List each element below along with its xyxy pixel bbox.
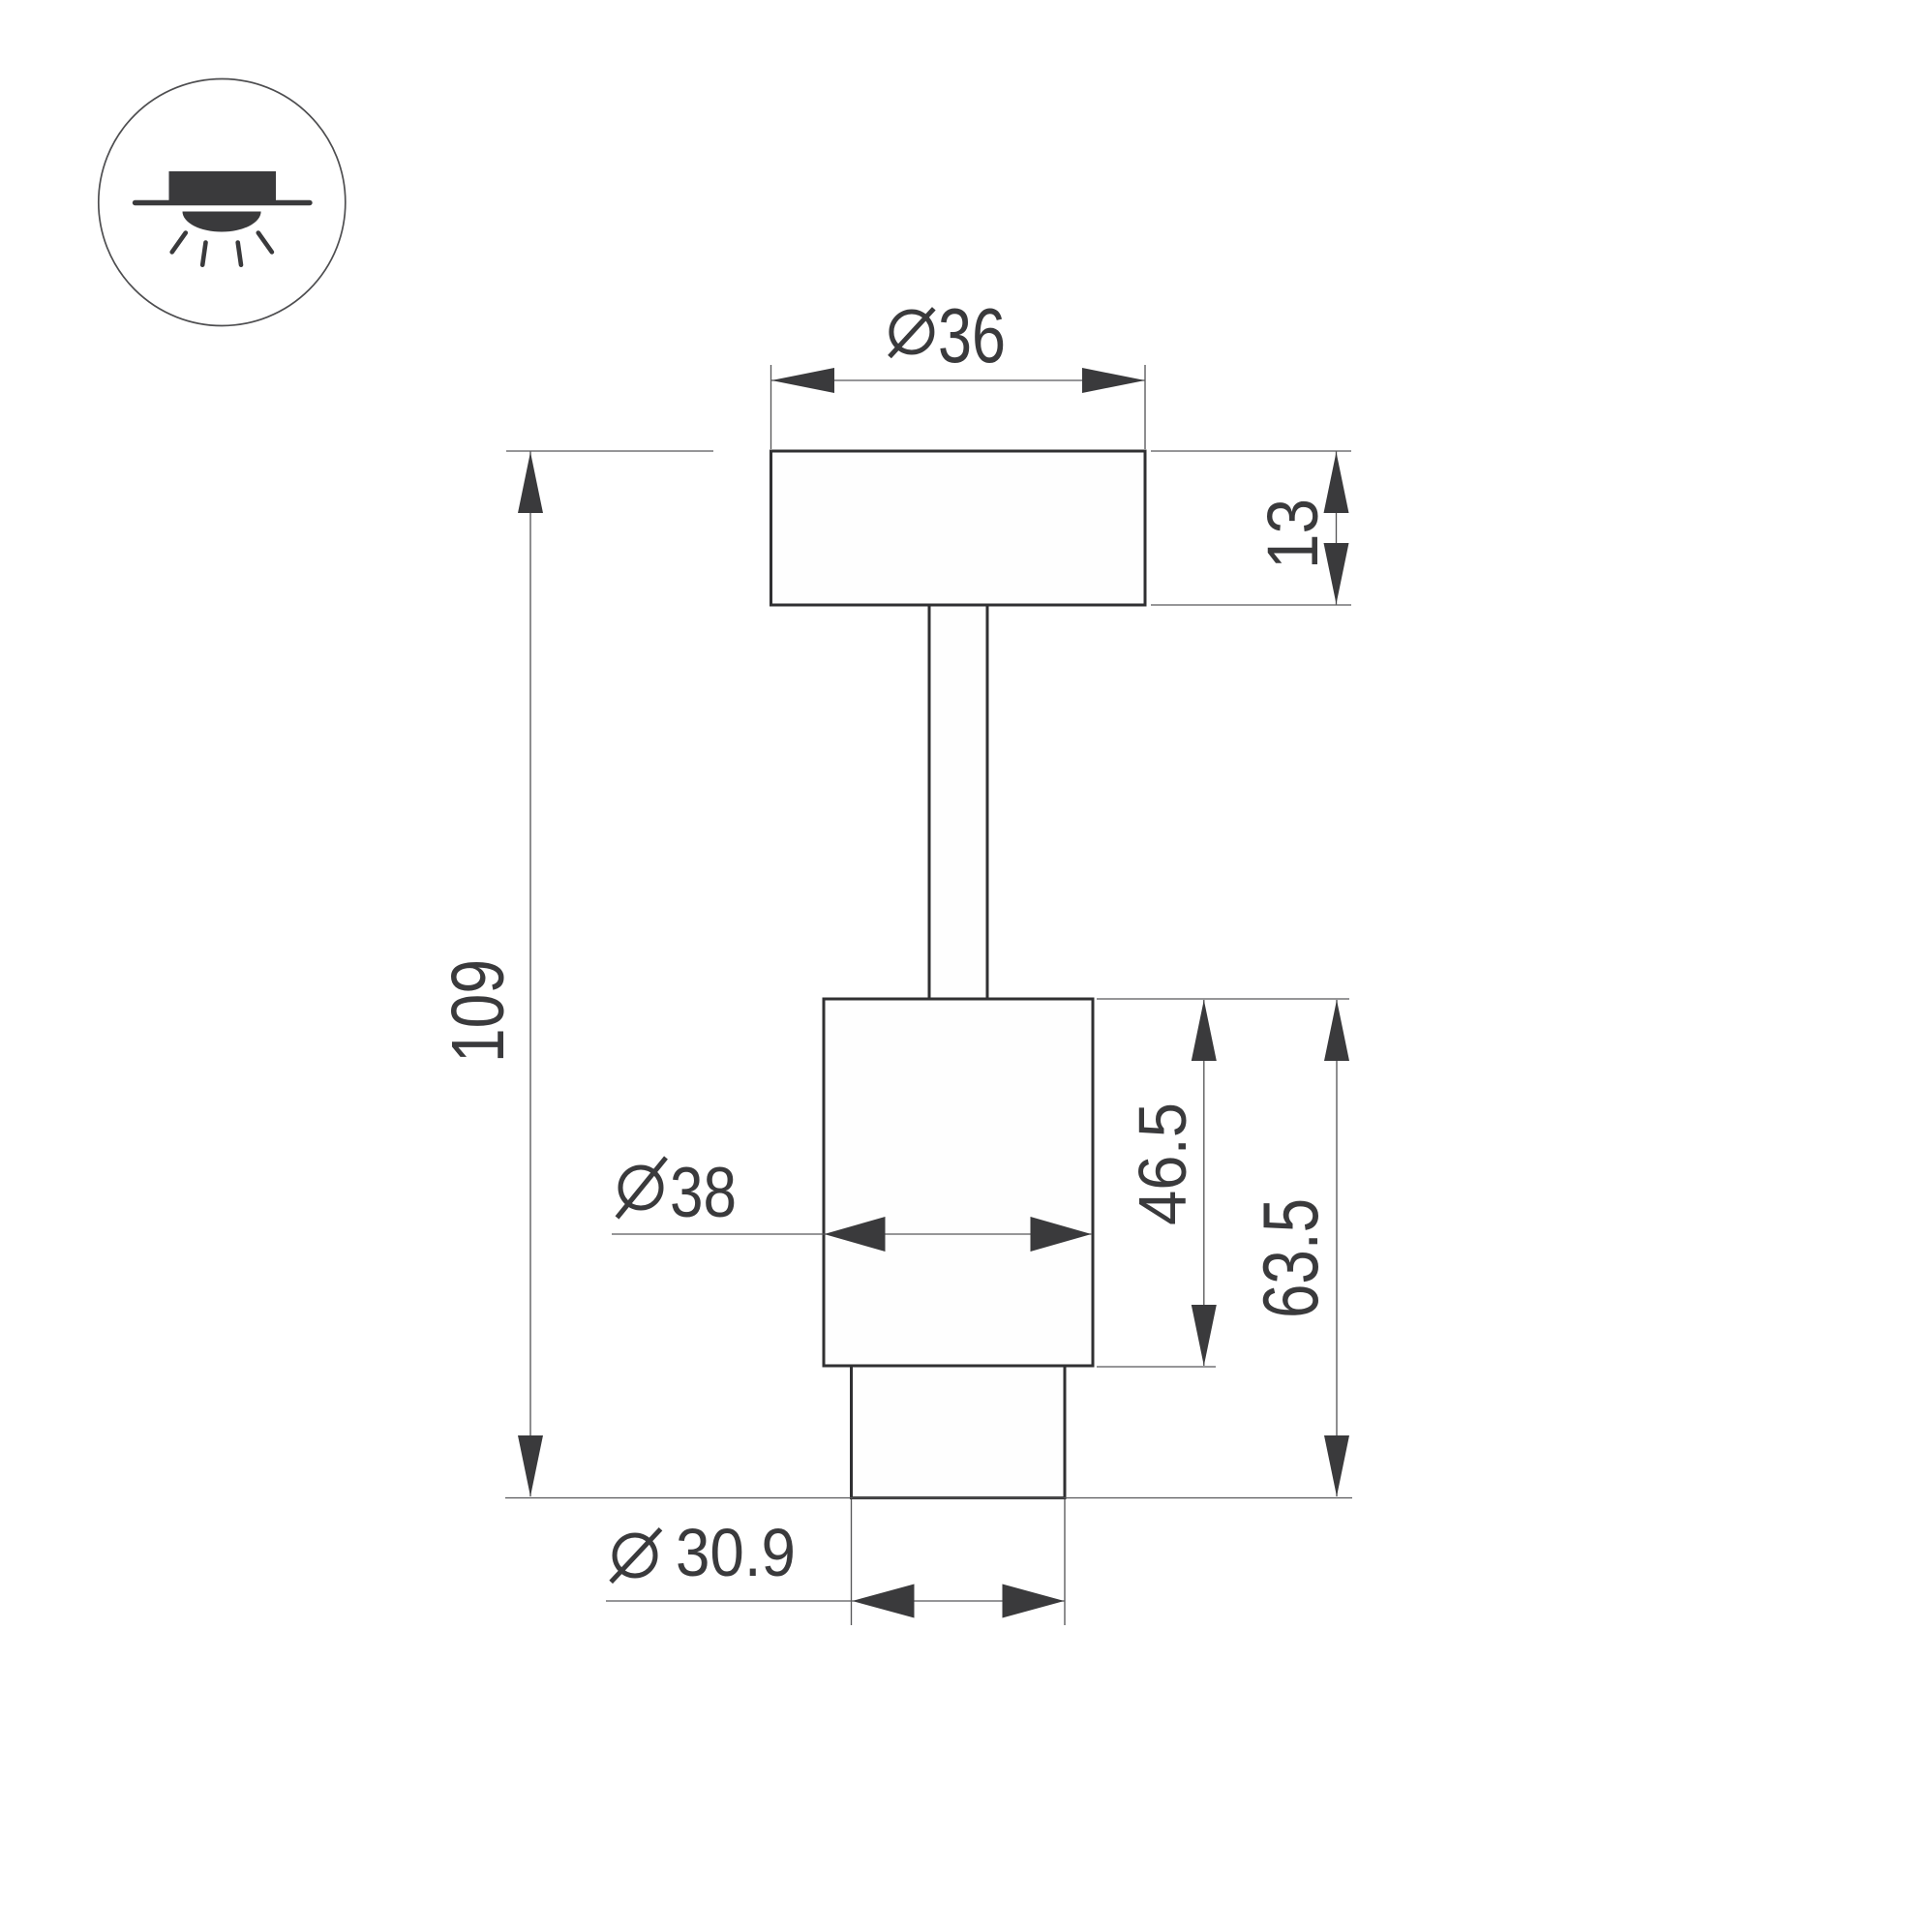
svg-text:38: 38 <box>670 1154 737 1232</box>
svg-text:109: 109 <box>437 959 520 1063</box>
svg-text:46.5: 46.5 <box>1125 1102 1200 1225</box>
svg-text:63.5: 63.5 <box>1248 1198 1335 1318</box>
svg-text:36: 36 <box>938 292 1006 378</box>
svg-text:13: 13 <box>1253 498 1333 569</box>
svg-text:30.9: 30.9 <box>676 1515 796 1590</box>
